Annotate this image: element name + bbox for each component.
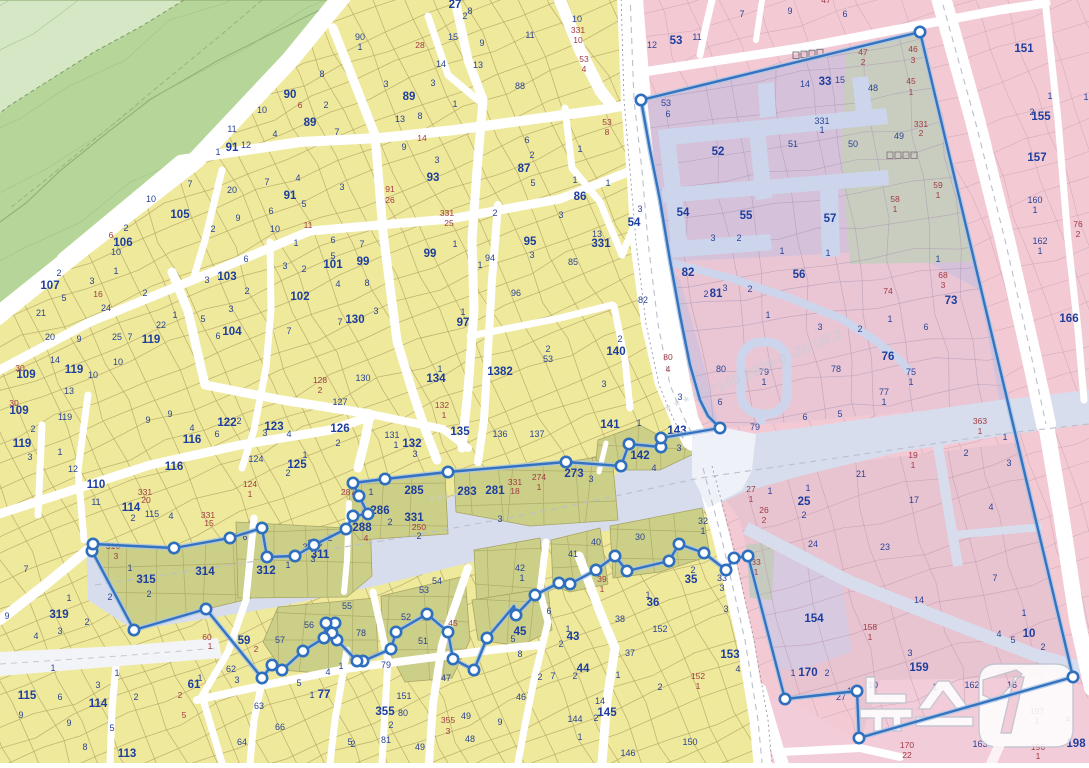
svg-text:170: 170 [900, 740, 914, 750]
svg-text:6: 6 [268, 206, 273, 216]
svg-text:53: 53 [419, 585, 429, 595]
svg-text:26: 26 [759, 505, 769, 515]
svg-text:87: 87 [518, 163, 531, 175]
svg-text:170: 170 [798, 667, 817, 679]
svg-text:1: 1 [477, 260, 482, 270]
svg-text:9: 9 [167, 409, 172, 419]
svg-text:2: 2 [285, 468, 290, 478]
svg-text:9: 9 [145, 415, 150, 425]
svg-text:1: 1 [1083, 92, 1088, 102]
svg-text:2: 2 [824, 668, 829, 678]
svg-text:18: 18 [510, 486, 520, 496]
svg-text:3: 3 [722, 283, 727, 293]
svg-text:22: 22 [156, 320, 166, 330]
svg-text:319: 319 [49, 609, 68, 621]
svg-text:53: 53 [661, 98, 671, 108]
svg-text:103: 103 [217, 271, 236, 283]
svg-text:5: 5 [296, 678, 301, 688]
svg-text:8: 8 [82, 742, 87, 752]
svg-text:86: 86 [574, 191, 587, 203]
svg-text:90: 90 [284, 89, 297, 101]
svg-text:2: 2 [56, 268, 61, 278]
svg-text:7: 7 [550, 671, 555, 681]
svg-text:2: 2 [690, 565, 695, 575]
svg-text:3: 3 [204, 275, 209, 285]
svg-text:116: 116 [165, 461, 184, 473]
svg-text:1: 1 [437, 364, 442, 374]
svg-text:1: 1 [935, 254, 940, 264]
svg-text:6: 6 [215, 331, 220, 341]
svg-text:160: 160 [1027, 195, 1042, 205]
svg-text:2: 2 [492, 208, 497, 218]
svg-text:76: 76 [882, 351, 895, 363]
svg-text:151: 151 [1014, 43, 1034, 55]
svg-text:11: 11 [304, 220, 313, 230]
svg-text:3: 3 [262, 428, 267, 438]
svg-text:62: 62 [226, 664, 236, 674]
svg-text:1: 1 [605, 178, 610, 188]
svg-text:8: 8 [467, 6, 472, 16]
svg-text:30: 30 [9, 398, 19, 408]
svg-text:4: 4 [735, 664, 740, 674]
svg-text:78: 78 [831, 364, 841, 374]
svg-text:14: 14 [50, 355, 60, 365]
svg-text:12: 12 [68, 464, 78, 474]
svg-text:7: 7 [187, 179, 192, 189]
svg-text:48: 48 [868, 83, 878, 93]
svg-text:80: 80 [663, 352, 673, 362]
svg-text:5: 5 [837, 409, 842, 419]
svg-text:24: 24 [808, 539, 818, 549]
svg-text:10: 10 [257, 105, 267, 115]
svg-text:122: 122 [217, 417, 236, 429]
svg-text:2: 2 [857, 324, 862, 334]
svg-text:134: 134 [426, 373, 446, 385]
svg-text:5: 5 [1010, 635, 1015, 645]
svg-text:27: 27 [449, 0, 462, 11]
svg-text:1: 1 [577, 732, 582, 742]
svg-text:131: 131 [384, 430, 399, 440]
svg-text:1: 1 [761, 377, 766, 387]
svg-text:14: 14 [595, 696, 605, 706]
svg-text:26: 26 [385, 195, 395, 205]
svg-text:3: 3 [723, 604, 728, 614]
svg-text:1: 1 [881, 397, 886, 407]
svg-text:9: 9 [787, 6, 792, 16]
svg-text:37: 37 [625, 648, 635, 658]
svg-text:2: 2 [657, 682, 662, 692]
svg-text:15: 15 [835, 75, 845, 85]
svg-text:2: 2 [301, 264, 306, 274]
svg-text:14: 14 [800, 79, 810, 89]
svg-text:2: 2 [572, 671, 577, 681]
svg-text:1: 1 [572, 175, 577, 185]
svg-text:25: 25 [444, 218, 454, 228]
svg-text:28: 28 [415, 40, 425, 50]
svg-text:58: 58 [890, 194, 900, 204]
svg-text:1: 1 [197, 673, 202, 683]
svg-text:55: 55 [740, 210, 753, 222]
svg-text:2: 2 [130, 513, 135, 523]
svg-text:1: 1 [1047, 91, 1052, 101]
svg-text:130: 130 [355, 373, 370, 383]
svg-text:45: 45 [514, 626, 527, 638]
svg-text:2: 2 [254, 644, 259, 654]
svg-text:1: 1 [66, 593, 71, 603]
svg-text:144: 144 [567, 714, 582, 724]
svg-text:94: 94 [485, 253, 495, 263]
svg-text:166: 166 [1059, 313, 1078, 325]
svg-text:4: 4 [168, 511, 173, 521]
svg-text:47: 47 [441, 673, 451, 683]
svg-text:48: 48 [465, 734, 475, 744]
svg-text:24: 24 [101, 303, 111, 313]
svg-text:1: 1 [452, 99, 457, 109]
svg-text:101: 101 [323, 259, 343, 271]
svg-text:20: 20 [45, 332, 55, 342]
svg-text:9: 9 [76, 334, 81, 344]
svg-text:1: 1 [1036, 751, 1041, 761]
svg-text:95: 95 [524, 236, 537, 248]
svg-text:2: 2 [963, 448, 968, 458]
svg-text:363: 363 [973, 416, 987, 426]
svg-text:2: 2 [178, 690, 183, 700]
svg-text:2: 2 [30, 424, 35, 434]
svg-text:6: 6 [214, 429, 219, 439]
svg-text:91: 91 [385, 184, 395, 194]
svg-text:331: 331 [440, 208, 454, 218]
svg-text:1: 1 [1021, 608, 1026, 618]
svg-text:3: 3 [941, 280, 946, 290]
svg-text:2: 2 [545, 344, 550, 354]
svg-text:91: 91 [226, 142, 239, 154]
svg-text:10: 10 [88, 370, 98, 380]
svg-text:74: 74 [883, 286, 893, 296]
svg-text:3: 3 [637, 204, 642, 214]
svg-text:1: 1 [519, 573, 524, 583]
svg-text:2: 2 [236, 416, 241, 426]
svg-text:1: 1 [868, 632, 873, 642]
svg-text:140: 140 [606, 346, 625, 358]
svg-text:88: 88 [515, 81, 525, 91]
svg-text:152: 152 [691, 671, 705, 681]
svg-text:141: 141 [600, 419, 620, 431]
svg-text:1: 1 [565, 624, 570, 634]
svg-text:1: 1 [779, 246, 784, 256]
svg-text:1: 1 [908, 377, 913, 387]
svg-text:12: 12 [647, 40, 657, 50]
svg-text:6: 6 [842, 9, 847, 19]
svg-text:3: 3 [911, 55, 916, 65]
svg-text:56: 56 [304, 620, 314, 630]
svg-text:162: 162 [1032, 236, 1047, 246]
svg-text:1: 1 [208, 641, 213, 651]
svg-text:11: 11 [692, 32, 701, 42]
svg-text:145: 145 [597, 707, 617, 719]
svg-text:3: 3 [89, 276, 94, 286]
svg-text:1: 1 [114, 668, 119, 678]
svg-text:105: 105 [170, 209, 190, 221]
svg-text:3: 3 [601, 379, 606, 389]
svg-text:59: 59 [933, 180, 943, 190]
svg-text:274: 274 [532, 472, 546, 482]
svg-text:51: 51 [418, 636, 428, 646]
svg-text:1: 1 [577, 144, 582, 154]
svg-text:54: 54 [432, 576, 442, 586]
svg-text:1: 1 [978, 426, 983, 436]
svg-text:23: 23 [880, 542, 890, 552]
svg-text:5: 5 [182, 710, 187, 720]
svg-text:2: 2 [244, 286, 249, 296]
svg-text:9: 9 [18, 710, 23, 720]
svg-text:81: 81 [381, 735, 391, 745]
svg-text:79: 79 [750, 422, 760, 432]
svg-text:1: 1 [790, 668, 795, 678]
svg-text:6: 6 [802, 412, 807, 422]
svg-text:11: 11 [227, 124, 236, 134]
svg-text:1: 1 [127, 563, 132, 573]
svg-text:355: 355 [441, 715, 455, 725]
svg-text:14: 14 [914, 595, 924, 605]
svg-text:154: 154 [804, 613, 824, 625]
svg-text:3: 3 [497, 514, 502, 524]
svg-text:2: 2 [703, 289, 708, 299]
svg-text:3: 3 [412, 449, 417, 459]
svg-text:52: 52 [712, 146, 725, 158]
svg-text:1: 1 [765, 310, 770, 320]
svg-text:5: 5 [510, 634, 515, 644]
svg-text:10: 10 [573, 35, 583, 45]
svg-text:53: 53 [579, 54, 589, 64]
svg-text:2: 2 [861, 57, 866, 67]
svg-text:52: 52 [401, 612, 411, 622]
svg-text:46: 46 [908, 44, 918, 54]
svg-text:64: 64 [237, 737, 247, 747]
svg-text:130: 130 [345, 314, 364, 326]
svg-text:7: 7 [992, 573, 997, 583]
svg-text:90: 90 [355, 32, 365, 42]
svg-text:315: 315 [136, 574, 156, 586]
svg-text:20: 20 [227, 185, 237, 195]
svg-text:113: 113 [118, 748, 137, 760]
svg-text:3: 3 [446, 726, 451, 736]
svg-text:55: 55 [342, 601, 352, 611]
svg-text:3: 3 [434, 155, 439, 165]
svg-text:6: 6 [330, 235, 335, 245]
svg-text:40: 40 [591, 537, 601, 547]
svg-text:4: 4 [996, 629, 1001, 639]
svg-text:21: 21 [856, 469, 866, 479]
svg-text:119: 119 [13, 438, 32, 450]
svg-text:126: 126 [330, 423, 349, 435]
svg-text:114: 114 [89, 698, 108, 710]
svg-text:85: 85 [568, 257, 578, 267]
svg-text:57: 57 [824, 213, 837, 225]
svg-text:97: 97 [457, 317, 470, 329]
svg-text:115: 115 [18, 690, 37, 702]
svg-text:27: 27 [746, 484, 756, 494]
svg-text:4: 4 [582, 64, 587, 74]
svg-text:124: 124 [248, 454, 263, 464]
svg-text:7: 7 [337, 317, 342, 327]
svg-text:8: 8 [517, 649, 522, 659]
svg-text:3: 3 [710, 233, 715, 243]
svg-text:1: 1 [357, 42, 362, 52]
svg-text:2: 2 [558, 639, 563, 649]
svg-text:1: 1 [393, 440, 398, 450]
svg-text:10: 10 [270, 224, 280, 234]
svg-text:2: 2 [416, 531, 421, 541]
svg-text:25: 25 [798, 496, 811, 508]
svg-text:49: 49 [894, 131, 904, 141]
svg-text:312: 312 [256, 565, 275, 577]
svg-text:54: 54 [677, 207, 690, 219]
svg-text:99: 99 [424, 248, 437, 260]
svg-text:32: 32 [698, 516, 708, 526]
svg-text:82: 82 [682, 267, 695, 279]
svg-text:1: 1 [215, 147, 220, 157]
svg-text:6: 6 [298, 100, 303, 110]
svg-text:1: 1 [645, 590, 650, 600]
svg-text:7: 7 [264, 177, 269, 187]
svg-text:3: 3 [228, 304, 233, 314]
svg-text:5: 5 [109, 723, 114, 733]
svg-text:68: 68 [938, 270, 948, 280]
svg-text:2: 2 [1040, 642, 1045, 652]
svg-text:89: 89 [403, 91, 416, 103]
svg-text:1: 1 [893, 204, 898, 214]
svg-text:1: 1 [825, 248, 830, 258]
svg-text:4: 4 [364, 533, 369, 543]
svg-text:119: 119 [58, 412, 72, 422]
svg-text:107: 107 [40, 280, 59, 292]
svg-text:2: 2 [801, 510, 806, 520]
svg-text:53: 53 [543, 354, 553, 364]
svg-text:1: 1 [1002, 432, 1007, 442]
svg-text:54: 54 [628, 217, 641, 229]
svg-text:3: 3 [57, 626, 62, 636]
svg-text:2: 2 [123, 223, 128, 233]
svg-text:7: 7 [23, 564, 28, 574]
svg-text:2: 2 [146, 589, 151, 599]
svg-text:2: 2 [350, 739, 355, 749]
svg-text:4: 4 [988, 502, 993, 512]
svg-text:4: 4 [33, 631, 38, 641]
svg-text:2: 2 [210, 224, 215, 234]
svg-text:15: 15 [448, 32, 458, 42]
svg-text:136: 136 [492, 429, 507, 439]
svg-text:1: 1 [57, 447, 62, 457]
svg-text:1: 1 [700, 526, 705, 536]
svg-text:4: 4 [272, 129, 277, 139]
svg-text:158: 158 [863, 622, 877, 632]
svg-text:11: 11 [91, 497, 100, 507]
svg-text:1: 1 [887, 314, 892, 324]
svg-text:3: 3 [383, 79, 388, 89]
svg-text:132: 132 [435, 400, 449, 410]
svg-text:3: 3 [234, 675, 239, 685]
svg-text:151: 151 [396, 691, 411, 701]
svg-text:38: 38 [615, 614, 625, 624]
svg-text:2: 2 [617, 334, 622, 344]
svg-text:273: 273 [564, 468, 583, 480]
svg-text:76: 76 [1073, 219, 1083, 229]
svg-text:1: 1 [172, 310, 177, 320]
svg-text:8: 8 [319, 69, 324, 79]
svg-text:5: 5 [200, 314, 205, 324]
svg-text:6: 6 [243, 254, 248, 264]
svg-text:1: 1 [537, 482, 542, 492]
svg-text:4: 4 [335, 279, 340, 289]
svg-text:15: 15 [204, 518, 214, 528]
svg-text:2: 2 [107, 592, 112, 602]
svg-text:2: 2 [387, 517, 392, 527]
svg-text:3: 3 [27, 452, 32, 462]
svg-text:16: 16 [93, 289, 103, 299]
svg-text:77: 77 [318, 689, 331, 701]
svg-text:1: 1 [909, 87, 914, 97]
svg-text:2: 2 [84, 617, 89, 627]
svg-text:7: 7 [359, 239, 364, 249]
svg-text:2: 2 [593, 713, 598, 723]
svg-text:14: 14 [436, 59, 446, 69]
svg-text:45: 45 [906, 76, 916, 86]
svg-text:41: 41 [568, 549, 578, 559]
svg-text:81: 81 [710, 288, 723, 300]
svg-text:5: 5 [301, 199, 306, 209]
svg-text:7: 7 [286, 326, 291, 336]
svg-text:142: 142 [630, 450, 649, 462]
svg-text:288: 288 [352, 522, 372, 534]
svg-text:4: 4 [295, 173, 300, 183]
svg-text:1: 1 [302, 450, 307, 460]
svg-text:102: 102 [290, 291, 309, 303]
svg-text:10: 10 [1023, 628, 1036, 640]
svg-text:2: 2 [747, 284, 752, 294]
svg-text:1: 1 [50, 663, 55, 673]
svg-text:1: 1 [767, 486, 772, 496]
svg-text:10: 10 [113, 357, 123, 367]
svg-text:63: 63 [254, 701, 264, 711]
svg-text:1: 1 [600, 584, 605, 594]
svg-text:6: 6 [57, 692, 62, 702]
svg-text:1: 1 [805, 483, 810, 493]
svg-text:110: 110 [87, 479, 106, 491]
svg-text:3: 3 [114, 551, 119, 561]
svg-text:59: 59 [238, 635, 251, 647]
svg-text:6: 6 [923, 322, 928, 332]
svg-text:1: 1 [636, 418, 641, 428]
svg-text:7: 7 [127, 332, 132, 342]
svg-text:89: 89 [304, 117, 317, 129]
svg-text:9: 9 [66, 718, 71, 728]
svg-text:355: 355 [375, 706, 395, 718]
svg-text:119: 119 [142, 334, 161, 346]
svg-text:1: 1 [911, 460, 916, 470]
svg-text:1: 1 [615, 670, 620, 680]
svg-text:127: 127 [332, 397, 347, 407]
svg-text:20: 20 [141, 495, 151, 505]
svg-text:77: 77 [879, 387, 889, 397]
svg-text:3: 3 [339, 182, 344, 192]
svg-text:22: 22 [902, 750, 912, 760]
svg-text:50: 50 [848, 139, 858, 149]
svg-text:104: 104 [222, 326, 242, 338]
svg-text:6: 6 [524, 135, 529, 145]
svg-text:1: 1 [1032, 205, 1037, 215]
svg-text:4: 4 [325, 667, 330, 677]
svg-text:49: 49 [415, 742, 425, 752]
